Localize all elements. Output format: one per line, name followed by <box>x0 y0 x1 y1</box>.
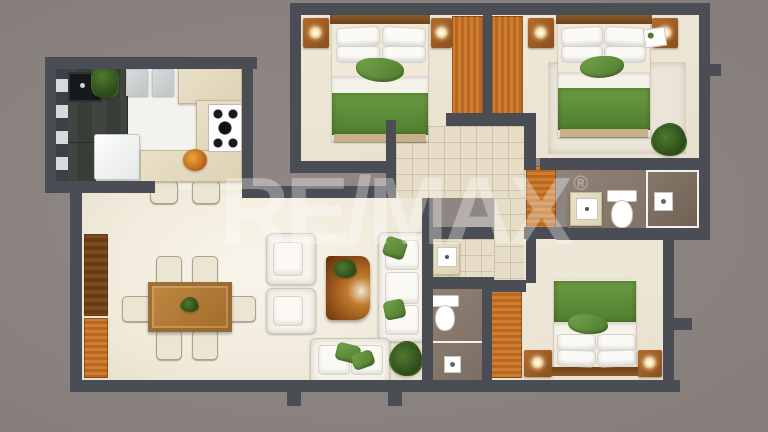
refrigerator <box>94 134 140 180</box>
bed-pillow <box>597 349 637 367</box>
bar-stool <box>192 180 220 204</box>
wall-segment <box>386 120 396 198</box>
bed-pillow <box>557 349 597 367</box>
wall-segment <box>290 3 470 15</box>
wall-segment <box>45 57 257 69</box>
wall-stub <box>674 318 692 330</box>
wall-segment <box>699 3 710 173</box>
armchair <box>266 233 316 285</box>
door-leaf-open <box>526 166 556 228</box>
table-lamp <box>435 26 448 39</box>
wall-segment <box>482 289 492 381</box>
wall-stub <box>699 64 721 76</box>
wall-segment <box>663 236 674 382</box>
shower-head <box>654 192 673 211</box>
sideboard-orange <box>84 318 108 378</box>
table-lamp <box>309 26 322 39</box>
wall-stub <box>388 392 402 406</box>
wall-segment <box>446 113 536 126</box>
shower-head <box>444 356 461 373</box>
wall-segment <box>483 13 492 117</box>
toilet-bowl <box>435 305 455 331</box>
hallway-floor-lower <box>494 198 526 280</box>
wall-segment <box>524 120 536 170</box>
toilet-bowl <box>611 200 633 228</box>
wardrobe <box>490 290 522 378</box>
armchair <box>266 288 316 334</box>
wardrobe-sliding-door <box>492 16 523 116</box>
bed-headboard <box>552 367 638 376</box>
wall-segment <box>45 181 155 193</box>
wall-segment <box>446 3 710 15</box>
floor-plan-render: RE/MAX® <box>0 0 768 432</box>
bed-throw-green <box>568 314 608 334</box>
sideboard-dark <box>84 234 108 316</box>
sink-faucet <box>80 83 85 88</box>
bed-pillow <box>604 26 647 48</box>
wall-segment <box>45 57 56 193</box>
dish-rack <box>126 69 148 96</box>
bed-blanket-green <box>558 88 650 130</box>
wall-segment <box>70 186 82 392</box>
coffee-table-plant <box>334 260 356 278</box>
fruit-bowl <box>183 149 207 171</box>
bed-pillow <box>336 26 381 48</box>
wall-segment <box>422 277 494 289</box>
table-lamp <box>534 26 547 39</box>
table-lamp <box>643 356 656 369</box>
wall-segment <box>540 158 710 170</box>
bed-footboard <box>560 129 648 137</box>
bedroom3-plant <box>652 124 686 156</box>
bed-pillow <box>561 26 604 48</box>
wall-segment <box>486 280 526 292</box>
wall-segment <box>422 198 433 382</box>
wall-segment <box>526 233 536 283</box>
gas-stove <box>208 104 242 152</box>
living-plant <box>390 342 422 376</box>
wardrobe-sliding-door <box>452 16 483 116</box>
wall-stub <box>287 392 301 406</box>
table-centerpiece <box>181 298 198 312</box>
wall-segment <box>242 186 388 198</box>
washbasin-sink <box>437 247 457 267</box>
wall-segment <box>290 161 396 173</box>
wall-segment <box>290 3 301 173</box>
bed-blanket-green <box>332 93 428 135</box>
bed-pillow <box>382 26 427 48</box>
dish-rack <box>152 69 174 96</box>
dining-chair <box>156 330 182 360</box>
service-tile-strip <box>56 66 68 182</box>
wall-segment <box>556 228 710 240</box>
kitchen-counter-lower <box>64 142 96 182</box>
wall-segment <box>242 57 253 186</box>
wall-segment <box>70 380 680 392</box>
kitchen-counter-top <box>178 68 242 104</box>
bed-footboard <box>334 134 426 142</box>
breakfast-tray <box>643 27 667 49</box>
wall-segment <box>422 227 494 239</box>
table-lamp <box>531 356 544 369</box>
bed-headboard <box>330 15 430 24</box>
vanity-sink <box>576 198 598 220</box>
dining-chair <box>192 330 218 360</box>
bed-headboard <box>556 15 652 24</box>
